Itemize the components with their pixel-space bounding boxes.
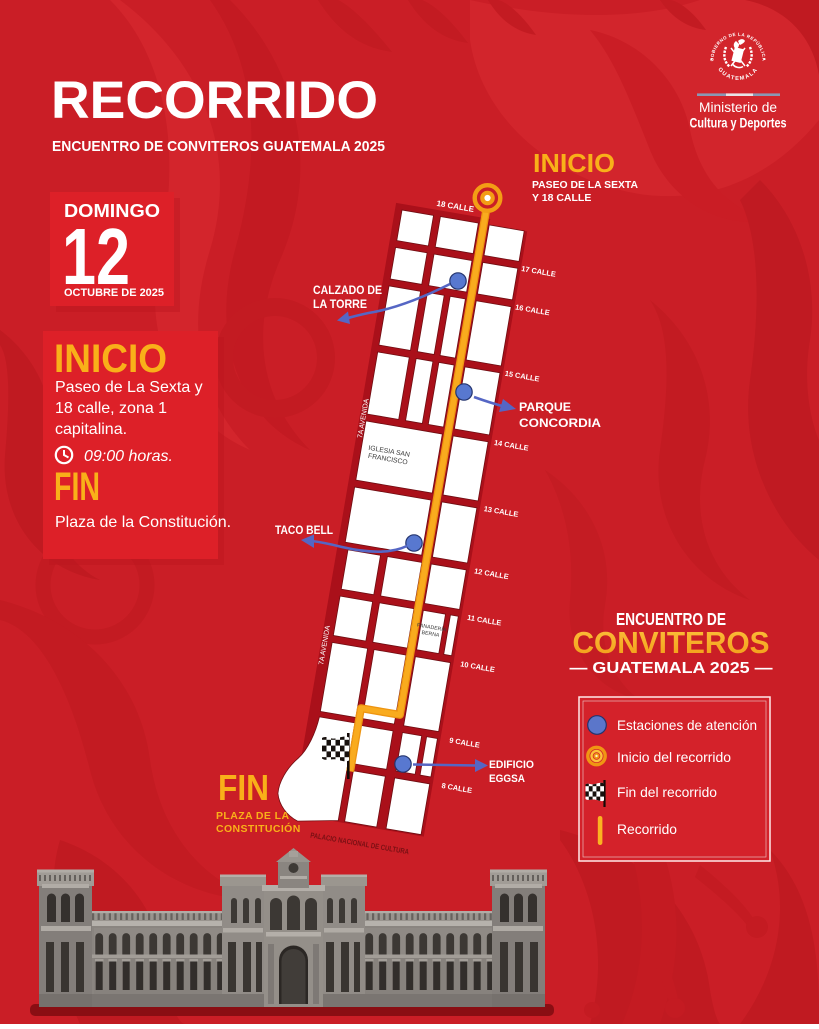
svg-text:EDIFICIO: EDIFICIO xyxy=(489,759,534,771)
svg-text:PLAZA DE LA: PLAZA DE LA xyxy=(216,810,289,822)
svg-text:ENCUENTRO DE CONVITEROS GUATEM: ENCUENTRO DE CONVITEROS GUATEMALA 2025 xyxy=(52,138,385,155)
svg-text:CONCORDIA: CONCORDIA xyxy=(519,416,601,430)
svg-text:Inicio del recorrido: Inicio del recorrido xyxy=(617,749,731,765)
svg-text:FIN: FIN xyxy=(54,465,100,509)
svg-text:CONSTITUCIÓN: CONSTITUCIÓN xyxy=(216,822,301,835)
svg-text:Paseo de La Sexta y: Paseo de La Sexta y xyxy=(55,379,203,396)
svg-text:LA TORRE: LA TORRE xyxy=(313,297,367,311)
svg-text:capitalina.: capitalina. xyxy=(55,421,127,438)
svg-text:Plaza de la Constitución.: Plaza de la Constitución. xyxy=(55,514,231,531)
svg-text:CONVITEROS: CONVITEROS xyxy=(573,625,770,660)
svg-text:INICIO: INICIO xyxy=(533,148,615,178)
svg-text:— GUATEMALA 2025 —: — GUATEMALA 2025 — xyxy=(570,660,773,677)
svg-text:Estaciones de atención: Estaciones de atención xyxy=(617,717,757,733)
svg-text:Recorrido: Recorrido xyxy=(617,821,677,837)
svg-text:TACO BELL: TACO BELL xyxy=(275,523,333,537)
svg-text:Fin del recorrido: Fin del recorrido xyxy=(617,784,717,800)
svg-text:OCTUBRE DE 2025: OCTUBRE DE 2025 xyxy=(64,287,164,299)
svg-text:EGGSA: EGGSA xyxy=(489,773,525,785)
svg-text:CALZADO DE: CALZADO DE xyxy=(313,283,382,297)
svg-text:RECORRIDO: RECORRIDO xyxy=(51,71,378,130)
svg-text:PARQUE: PARQUE xyxy=(519,400,571,414)
svg-text:09:00 horas.: 09:00 horas. xyxy=(84,448,173,465)
svg-text:PASEO DE LA SEXTA: PASEO DE LA SEXTA xyxy=(532,179,638,191)
svg-text:Cultura y Deportes: Cultura y Deportes xyxy=(690,115,787,131)
svg-text:Ministerio de: Ministerio de xyxy=(699,100,777,115)
svg-text:FIN: FIN xyxy=(218,767,269,808)
svg-text:INICIO: INICIO xyxy=(54,337,167,381)
svg-text:Y 18 CALLE: Y 18 CALLE xyxy=(532,192,591,204)
svg-text:18 calle, zona 1: 18 calle, zona 1 xyxy=(55,400,167,417)
